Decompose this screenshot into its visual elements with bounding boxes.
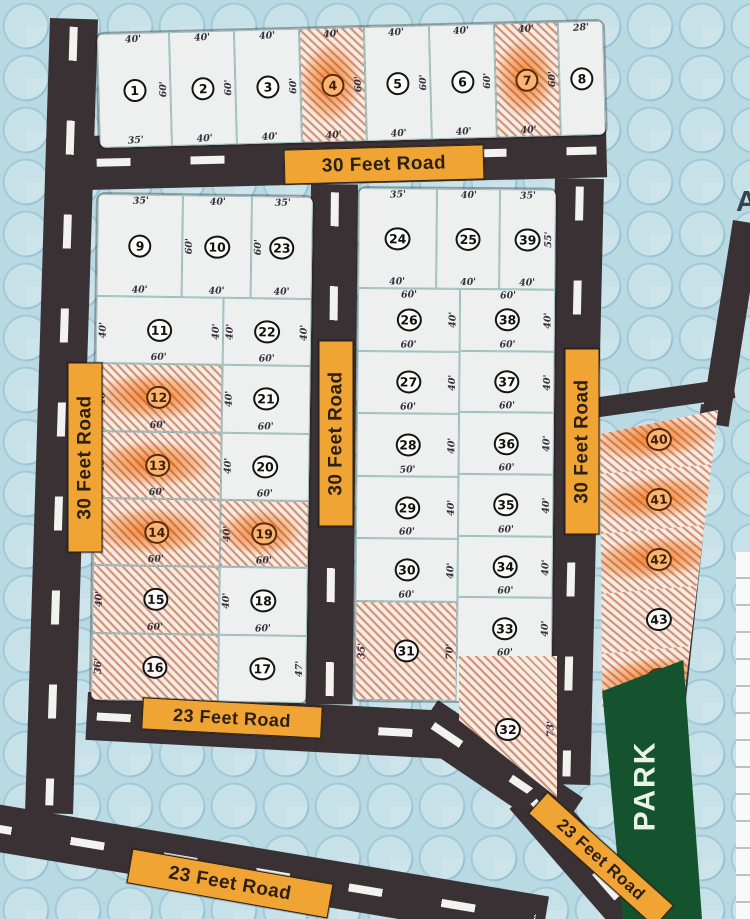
dimension-label: 40' [94,591,105,607]
dimension-label: 40' [714,485,718,502]
plot-22: 2260'40'40' [222,298,311,367]
plot-20: 2060'40' [221,432,310,501]
dimension-label: 35' [390,189,407,201]
plot-25: 2540'40' [436,189,500,290]
plot-24: 2435'40' [358,188,437,289]
plot-number: 13 [145,453,171,476]
plot-39: 3935'40'55' [499,189,556,289]
plot-27: 2760'40' [357,351,460,415]
plot-number: 20 [252,455,278,478]
block-far-right: 4080'40'38'4140'40'4240'40'-6"4340'40'-6… [600,410,718,710]
block-left-header-row: 935'40'1040'40'60'2335'40'60' [97,194,313,299]
plot-number: 36 [494,432,520,455]
plot-30: 3060'40' [355,538,458,602]
plot-number: 10 [204,235,230,258]
dimension-label: 60' [256,488,273,500]
plot-18: 1860'40' [219,567,308,636]
plot-number: 35 [493,494,519,517]
plot-42: 4240'40'-6" [600,523,718,597]
dimension-label: 60' [223,79,234,95]
plot-31: 3135'70' [355,601,458,701]
dimension-label: 35' [356,642,367,658]
dimension-label: 40' [209,196,226,208]
plot-3: 340'40'60' [234,29,302,145]
road-badge-text: 30 Feet Road [322,152,447,177]
plot-number: 8 [570,67,594,91]
plot-16: 1636' [91,633,219,702]
dimension-label: 40' [540,559,551,575]
dimension-label: 60' [497,524,514,536]
plot-number: 11 [147,319,173,342]
dimension-label: 40' [222,525,233,541]
road-badge-text: 23 Feet Road [173,704,292,731]
dimension-label: 60' [147,621,164,633]
plot-10: 1040'40'60' [182,195,252,298]
dimension-label: 40' [221,593,232,609]
plot-23: 2335'40'60' [251,196,313,299]
plot-number: 41 [645,486,672,511]
dimension-label: 60' [401,289,418,301]
dimension-label: 35' [274,197,291,209]
road-badge-middle: 30 Feet Road [319,341,354,527]
plot-number: 42 [645,546,672,571]
dimension-label: 40' [390,128,407,140]
plot-8: 828' [558,21,606,136]
dimension-label: 70' [445,643,456,659]
dimension-label: 60' [499,400,516,412]
block-right-west-column: 2660'60'40'2760'40'2850'40'2960'40'3060'… [355,288,461,701]
plot-number: 22 [254,320,280,343]
dimension-label: 40' [193,32,210,44]
dimension-label: 60' [150,419,167,431]
plot-number: 7 [515,68,539,92]
dimension-label: 40' [453,25,470,37]
dimension-label: 40'-6" [710,598,718,630]
dimension-label: 40' [542,374,553,390]
dimension-label: 40' [326,129,343,141]
dimension-label: 60' [498,462,515,474]
plot-number: 40 [645,426,672,451]
plot-33: 3360'40' [457,597,552,659]
dimension-label: 40' [448,312,459,328]
plot-19: 1960'40' [220,500,309,569]
dimension-label: 40' [541,436,552,452]
dimension-label: 40'-6" [710,538,718,570]
road-badge-text: 30 Feet Road [325,371,347,495]
plot-17: 1747' [218,634,307,703]
dimension-label: 40' [208,285,225,297]
dimension-label: 40' [125,33,142,45]
dimension-label: 35' [520,190,537,202]
plot-number: 28 [395,433,421,456]
plot-number: 3 [256,75,280,99]
block-right: 2435'40'2540'40'3935'40'55' 2660'60'40'2… [355,188,556,702]
block-left-east-column: 2260'40'40'2160'40'2060'40'1960'40'1860'… [218,298,312,703]
plot-number: 25 [456,227,482,250]
dimension-label: 60' [417,74,428,90]
dimension-label: 40' [541,497,552,513]
plot-number: 16 [142,655,168,678]
road-badge-right: 30 Feet Road [565,349,600,535]
plot-number: 34 [493,555,519,578]
dimension-label: 40' [222,458,233,474]
plot-number: 39 [515,228,541,251]
plot-14: 1460'40' [93,498,221,567]
dimension-label: 60' [482,73,493,89]
plot-number: 37 [494,370,520,393]
plot-38: 3860'60'40' [460,289,555,351]
dimension-label: 40' [540,621,551,637]
plot-number: 15 [143,588,169,611]
plot-4: 440'40'60' [299,27,367,143]
dimension-label: 60' [253,239,264,255]
plot-number: 43 [645,606,672,631]
dimension-label: 40' [447,437,458,453]
block-left: 935'40'1040'40'60'2335'40'60' 1160'40'40… [91,194,313,703]
dimension-label: 55' [543,232,554,248]
dimension-label: 40' [131,284,148,296]
dimension-label: 40' [446,500,457,516]
dimension-label: 40' [223,391,234,407]
plot-29: 2960'40' [356,476,459,540]
plot-layout-map: A 140'35'60'240'40'60'340'40'60'440'40'6… [0,0,750,919]
dimension-label: 40' [520,124,537,136]
dimension-label: 60' [158,81,169,97]
plot-7: 740'40'60' [493,22,561,138]
plot-2: 240'40'60' [169,30,237,146]
dimension-label: 40' [224,323,235,339]
plot-number: 21 [253,388,279,411]
dimension-label: 40' [210,323,221,339]
dimension-label: 40' [600,616,603,633]
dimension-label: 40' [447,375,458,391]
dimension-label: 40' [98,322,109,338]
dimension-label: 60' [256,555,273,567]
plot-9: 935'40' [97,194,184,297]
dimension-label: 40' [323,28,340,40]
road-badge-top: 30 Feet Road [284,144,485,184]
plot-21: 2160'40' [222,365,311,434]
dimension-label: 60' [497,585,514,597]
dimension-label: 60' [353,76,364,92]
dimension-label: 40' [273,286,290,298]
dimension-label: 40' [600,436,603,453]
plot-12: 1260'40' [95,363,223,432]
road-badge-text: 30 Feet Road [74,395,96,519]
plot-number: 18 [250,590,276,613]
dimension-label: 47' [294,661,305,677]
block-right-header-row: 2435'40'2540'40'3935'40'55' [358,188,556,290]
plot-34: 3460'40' [458,536,553,598]
plot-number: 12 [146,386,172,409]
dimension-label: 40' [455,126,472,138]
dimension-label: 60' [288,78,299,94]
block-right-east-column: 3860'60'40'3760'40'3660'40'3560'40'3460'… [457,289,555,660]
dimension-label: 60' [258,353,275,365]
dimension-label: 38' [714,425,718,442]
plot-number: 30 [394,559,420,582]
park-label: PARK [628,740,662,831]
plot-13: 1360'40' [94,431,222,500]
plot-number: 24 [385,227,411,250]
dimension-label: 40' [517,23,534,35]
dimension-label: 40' [196,133,213,145]
dimension-label: 60' [399,527,416,539]
plot-35: 3560'40' [458,474,553,536]
dimension-label: 60' [400,401,417,413]
dimension-label: 60' [255,623,272,635]
plot-number: 23 [269,236,295,259]
dimension-label: 60' [547,71,558,87]
dimension-label: 60' [149,487,166,499]
dimension-label: 40' [298,324,309,340]
dimension-label: 40' [445,562,456,578]
plot-5: 540'40'60' [364,25,432,141]
dimension-label: 35' [132,195,149,207]
plot-number: 19 [251,522,277,545]
plot-number: 27 [396,371,422,394]
dimension-label: 35' [127,134,144,146]
plot-36: 3660'40' [459,412,554,474]
block-top-row: 140'35'60'240'40'60'340'40'60'440'40'60'… [97,21,606,148]
plot-number: 31 [393,639,419,662]
block-left-west-column: 1160'40'40'1260'40'1360'40'1460'40'1560'… [91,296,223,702]
plot-1: 140'35'60' [97,32,172,148]
dimension-label: 36' [93,658,104,674]
plot-number: 17 [249,657,275,680]
plot-28: 2850'40' [356,413,459,477]
plot-number: 6 [451,70,475,94]
edge-letter: A [736,186,750,219]
dimension-label: 73' [545,721,556,737]
plot-43: 4340'40'-6" [600,583,718,657]
plot-number: 5 [386,71,410,95]
dimension-label: 80' [648,410,666,421]
dimension-label: 60' [184,238,195,254]
dimension-label: 60' [151,352,168,364]
plot-number: 38 [495,309,521,332]
plot-15: 1560'40' [92,565,220,634]
plot-number: 2 [191,76,215,100]
edge-grid-texture [736,552,750,919]
dimension-label: 40' [258,30,275,42]
dimension-label: 60' [499,339,516,351]
plot-37: 3760'40' [459,351,554,413]
plot-number: 29 [395,496,421,519]
plot-26: 2660'60'40' [358,288,461,352]
dimension-label: 50' [399,464,416,476]
plot-number: 14 [144,521,170,544]
dimension-label: 28' [572,22,589,34]
dimension-label: 40' [460,277,477,289]
dimension-label: 40' [542,312,553,328]
dimension-label: 40' [600,556,603,573]
plot-number: 33 [492,617,518,640]
plot-number: 4 [321,73,345,97]
plot-number: 26 [396,308,422,331]
road-badge-left: 30 Feet Road [68,363,103,553]
plot-number: 32 [495,718,520,741]
dimension-label: 40' [389,276,406,288]
road-badge-text: 30 Feet Road [571,379,593,503]
plot-number: 9 [128,234,151,257]
dimension-label: 60' [398,589,415,601]
plot-11: 1160'40'40' [96,296,224,365]
dimension-label: 60' [148,554,165,566]
dimension-label: 60' [499,290,516,302]
plot-6: 640'40'60' [429,24,497,140]
dimension-label: 25' [600,676,603,693]
dimension-label: 60' [257,421,274,433]
dimension-label: 60' [401,339,418,351]
dimension-label: 40' [600,496,603,513]
dimension-label: 40' [519,277,536,289]
plot-number: 1 [123,78,147,102]
dimension-label: 40' [388,27,405,39]
dimension-label: 40' [261,131,278,143]
dimension-label: 40' [460,190,477,202]
